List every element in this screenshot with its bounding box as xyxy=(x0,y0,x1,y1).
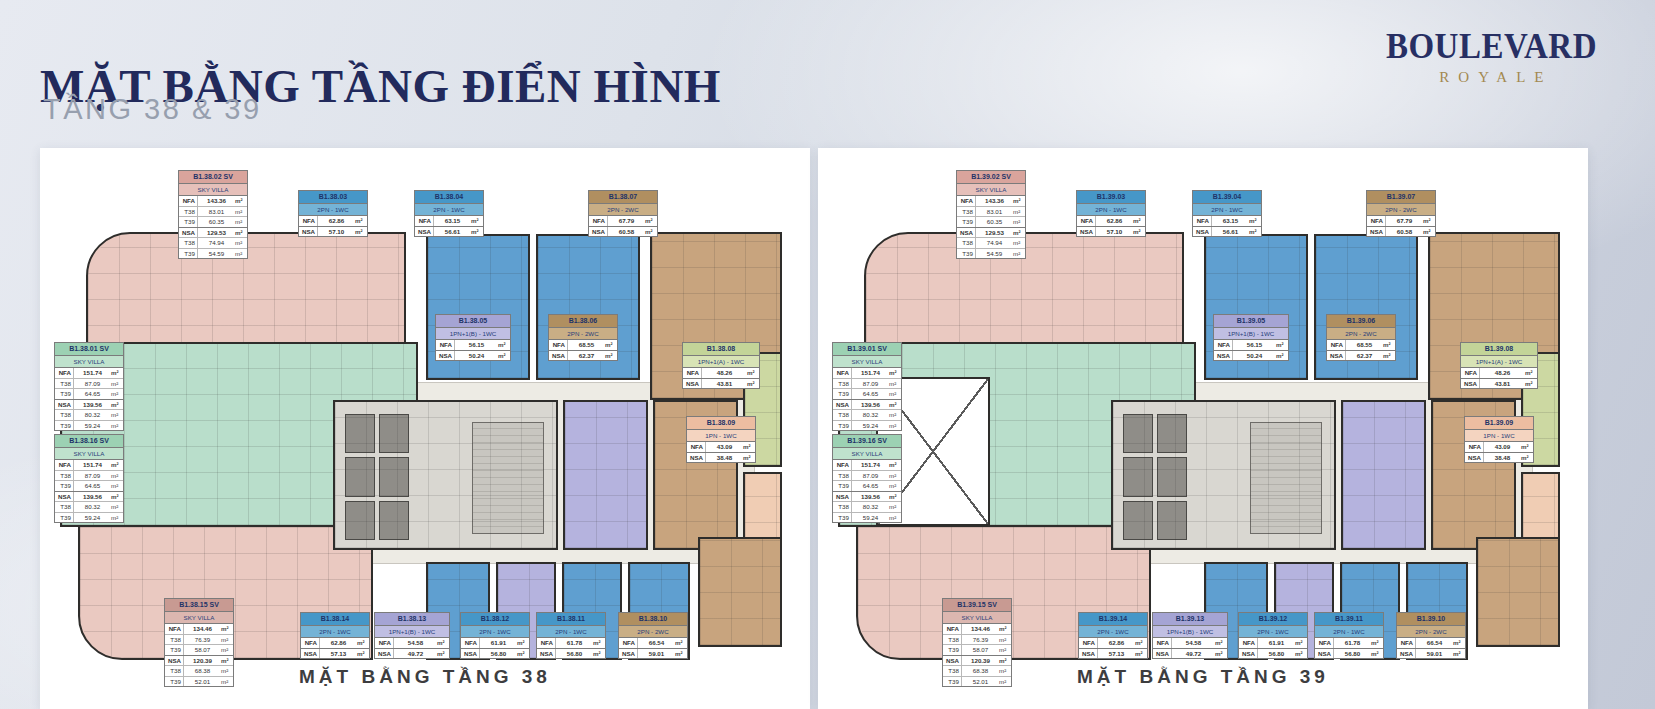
area-row: T3952.01m² xyxy=(943,677,1011,687)
area-row: NFA67.79m² xyxy=(1367,215,1435,227)
unit-table-04: B1.39.042PN - 1WCNFA63.15m²NSA56.61m² xyxy=(1192,190,1262,237)
unit-table-15: B1.38.15 SVSKY VILLANFA134.46m²T3876.39m… xyxy=(164,598,234,687)
area-row: T3880.32m² xyxy=(55,502,123,513)
unit-table-02: B1.38.02 SVSKY VILLANFA143.36m²T3883.01m… xyxy=(178,170,248,259)
elevator-icon xyxy=(345,501,375,540)
unit-table-08: B1.39.081PN+1(A) - 1WCNFA48.26m²NSA43.81… xyxy=(1460,342,1538,389)
unit-code: B1.39.01 SV xyxy=(833,343,901,356)
unit-code: B1.38.14 xyxy=(301,613,369,626)
area-row: T3868.38m² xyxy=(943,666,1011,677)
unit-code: B1.39.12 xyxy=(1239,613,1307,626)
area-row: NSA62.37m² xyxy=(549,350,617,361)
unit-code: B1.38.13 xyxy=(375,613,449,626)
area-row: T3964.65m² xyxy=(833,389,901,400)
unit-table-12: B1.39.122PN - 1WCNFA61.91m²NSA56.80m² xyxy=(1238,612,1308,659)
unit-code: B1.39.05 xyxy=(1214,315,1288,328)
unit-code: B1.38.06 xyxy=(549,315,617,328)
unit-table-14: B1.38.142PN - 1WCNFA62.86m²NSA57.13m² xyxy=(300,612,370,659)
unit-code: B1.38.15 SV xyxy=(165,599,233,612)
unit-table-14: B1.39.142PN - 1WCNFA62.86m²NSA57.13m² xyxy=(1078,612,1148,659)
elevator-icon xyxy=(379,501,409,540)
area-row: NFA66.54m² xyxy=(619,637,687,649)
area-row: T3880.32m² xyxy=(55,410,123,421)
unit-code: B1.39.09 xyxy=(1465,417,1533,430)
unit-code: B1.39.06 xyxy=(1327,315,1395,328)
unit-code: B1.38.03 xyxy=(299,191,367,204)
area-row: NSA49.72m² xyxy=(1153,648,1227,659)
area-row: T3960.35m² xyxy=(179,217,247,228)
area-row: T3964.65m² xyxy=(55,481,123,492)
area-row: NFA134.46m² xyxy=(165,623,233,635)
area-row: NFA61.78m² xyxy=(537,637,605,649)
unit-code: B1.38.16 SV xyxy=(55,435,123,448)
area-row: NFA62.86m² xyxy=(1077,215,1145,227)
unit-table-05: B1.38.051PN+1(B) - 1WCNFA56.15m²NSA50.24… xyxy=(435,314,511,361)
area-row: NSA60.58m² xyxy=(589,226,657,237)
elevator-icon xyxy=(379,414,409,453)
area-row: NFA48.26m² xyxy=(1461,367,1537,379)
unit-table-03: B1.39.032PN - 1WCNFA62.86m²NSA57.10m² xyxy=(1076,190,1146,237)
area-row: NFA63.15m² xyxy=(1193,215,1261,227)
area-row: T3959.24m² xyxy=(55,421,123,431)
block-core xyxy=(333,400,558,550)
floor-plan-panel-39: B1.39.02 SVSKY VILLANFA143.36m²T3883.01m… xyxy=(818,148,1588,709)
elevator-icon xyxy=(379,457,409,496)
area-row: T3874.94m² xyxy=(179,238,247,249)
block-core xyxy=(1111,400,1336,550)
unit-code: B1.39.16 SV xyxy=(833,435,901,448)
unit-table-09: B1.38.091PN - 1WCNFA43.09m²NSA38.48m² xyxy=(686,416,756,463)
elevator-bank xyxy=(345,414,409,540)
block-unit-10 xyxy=(698,537,782,647)
area-row: NFA68.55m² xyxy=(549,339,617,351)
area-row: NSA139.56m² xyxy=(833,399,901,411)
area-row: NSA139.56m² xyxy=(833,491,901,503)
unit-table-16: B1.39.16 SVSKY VILLANFA151.74m²T3887.09m… xyxy=(832,434,902,523)
page-subtitle: TẦNG 38 & 39 xyxy=(43,93,262,126)
elevator-bank xyxy=(1123,414,1187,540)
unit-table-01: B1.39.01 SVSKY VILLANFA151.74m²T3887.09m… xyxy=(832,342,902,431)
area-row: NFA62.86m² xyxy=(301,637,369,649)
area-row: NSA120.39m² xyxy=(943,655,1011,667)
area-row: NSA139.56m² xyxy=(55,399,123,411)
area-row: NFA54.58m² xyxy=(375,637,449,649)
plan-caption-38: MẶT BẰNG TẦNG 38 xyxy=(40,666,810,688)
area-row: T3874.94m² xyxy=(957,238,1025,249)
unit-code: B1.38.11 xyxy=(537,613,605,626)
area-row: T3964.65m² xyxy=(833,481,901,492)
area-row: T3883.01m² xyxy=(179,207,247,218)
elevator-icon xyxy=(1123,414,1153,453)
elevator-icon xyxy=(1123,457,1153,496)
unit-code: B1.39.04 xyxy=(1193,191,1261,204)
unit-code: B1.38.10 xyxy=(619,613,687,626)
block-unit-05 xyxy=(563,400,648,550)
area-row: NSA57.10m² xyxy=(299,226,367,237)
area-row: T3887.09m² xyxy=(833,471,901,482)
area-row: T3868.38m² xyxy=(165,666,233,677)
area-row: NSA57.10m² xyxy=(1077,226,1145,237)
area-row: NSA49.72m² xyxy=(375,648,449,659)
area-row: NFA61.91m² xyxy=(461,637,529,649)
stairs-icon xyxy=(1250,422,1322,534)
area-row: T3954.59m² xyxy=(179,249,247,259)
area-row: NSA59.01m² xyxy=(1397,648,1465,659)
unit-table-12: B1.38.122PN - 1WCNFA61.91m²NSA56.80m² xyxy=(460,612,530,659)
unit-code: B1.39.14 xyxy=(1079,613,1147,626)
block-unit-05 xyxy=(1341,400,1426,550)
unit-code: B1.38.04 xyxy=(415,191,483,204)
floor-plan-drawing-38 xyxy=(58,232,782,660)
unit-code: B1.39.10 xyxy=(1397,613,1465,626)
area-row: NSA129.53m² xyxy=(179,227,247,239)
area-row: NFA63.15m² xyxy=(415,215,483,227)
area-row: NFA66.54m² xyxy=(1397,637,1465,649)
area-row: NSA60.58m² xyxy=(1367,226,1435,237)
area-row: NSA56.80m² xyxy=(537,648,605,659)
unit-table-09: B1.39.091PN - 1WCNFA43.09m²NSA38.48m² xyxy=(1464,416,1534,463)
unit-code: B1.38.01 SV xyxy=(55,343,123,356)
area-row: NSA50.24m² xyxy=(1214,350,1288,361)
unit-table-16: B1.38.16 SVSKY VILLANFA151.74m²T3887.09m… xyxy=(54,434,124,523)
area-row: T3959.24m² xyxy=(833,421,901,431)
area-row: NFA43.09m² xyxy=(687,441,755,453)
area-row: NSA38.48m² xyxy=(687,452,755,463)
area-row: T3952.01m² xyxy=(165,677,233,687)
floor-plan-panel-38: B1.38.02 SVSKY VILLANFA143.36m²T3883.01m… xyxy=(40,148,810,709)
unit-table-01: B1.38.01 SVSKY VILLANFA151.74m²T3887.09m… xyxy=(54,342,124,431)
area-row: NFA151.74m² xyxy=(833,367,901,379)
unit-code: B1.38.02 SV xyxy=(179,171,247,184)
area-row: NSA43.81m² xyxy=(1461,378,1537,389)
area-row: NFA151.74m² xyxy=(55,367,123,379)
unit-code: B1.39.08 xyxy=(1461,343,1537,356)
area-row: NFA62.86m² xyxy=(299,215,367,227)
area-row: NSA50.24m² xyxy=(436,350,510,361)
area-row: T3887.09m² xyxy=(55,471,123,482)
area-row: T3887.09m² xyxy=(55,379,123,390)
elevator-icon xyxy=(1157,457,1187,496)
area-row: NFA67.79m² xyxy=(589,215,657,227)
brand-logo: BOULEVARD ROYALE xyxy=(1386,30,1597,86)
area-row: NSA59.01m² xyxy=(619,648,687,659)
area-row: NSA56.80m² xyxy=(1315,648,1383,659)
brand-logo-name: BOULEVARD xyxy=(1386,29,1597,65)
area-row: NSA56.80m² xyxy=(461,648,529,659)
area-row: T3960.35m² xyxy=(957,217,1025,228)
area-row: NSA120.39m² xyxy=(165,655,233,667)
unit-table-10: B1.38.102PN - 2WCNFA66.54m²NSA59.01m² xyxy=(618,612,688,659)
area-row: NSA139.56m² xyxy=(55,491,123,503)
area-row: NFA134.46m² xyxy=(943,623,1011,635)
unit-code: B1.39.11 xyxy=(1315,613,1383,626)
plan-caption-39: MẶT BẰNG TẦNG 39 xyxy=(818,666,1588,688)
unit-code: B1.39.13 xyxy=(1153,613,1227,626)
unit-table-02: B1.39.02 SVSKY VILLANFA143.36m²T3883.01m… xyxy=(956,170,1026,259)
area-row: NSA56.80m² xyxy=(1239,648,1307,659)
area-row: T3959.24m² xyxy=(833,513,901,523)
unit-table-08: B1.38.081PN+1(A) - 1WCNFA48.26m²NSA43.81… xyxy=(682,342,760,389)
unit-code: B1.39.15 SV xyxy=(943,599,1011,612)
area-row: NSA57.13m² xyxy=(1079,648,1147,659)
brand-logo-sub: ROYALE xyxy=(1386,69,1597,86)
area-row: T3876.39m² xyxy=(943,635,1011,646)
unit-code: B1.39.02 SV xyxy=(957,171,1025,184)
area-row: NSA56.61m² xyxy=(415,226,483,237)
area-row: T3954.59m² xyxy=(957,249,1025,259)
area-row: NSA43.81m² xyxy=(683,378,759,389)
area-row: T3876.39m² xyxy=(165,635,233,646)
elevator-icon xyxy=(1123,501,1153,540)
area-row: NFA43.09m² xyxy=(1465,441,1533,453)
unit-code: B1.38.12 xyxy=(461,613,529,626)
unit-code: B1.39.03 xyxy=(1077,191,1145,204)
area-row: T3958.07m² xyxy=(165,645,233,656)
area-row: NSA129.53m² xyxy=(957,227,1025,239)
stairs-icon xyxy=(472,422,544,534)
elevator-icon xyxy=(1157,501,1187,540)
unit-table-07: B1.39.072PN - 2WCNFA67.79m²NSA60.58m² xyxy=(1366,190,1436,237)
area-row: T3887.09m² xyxy=(833,379,901,390)
unit-table-05: B1.39.051PN+1(B) - 1WCNFA56.15m²NSA50.24… xyxy=(1213,314,1289,361)
unit-table-06: B1.38.062PN - 2WCNFA68.55m²NSA62.37m² xyxy=(548,314,618,361)
unit-code: B1.38.07 xyxy=(589,191,657,204)
unit-table-11: B1.38.112PN - 1WCNFA61.78m²NSA56.80m² xyxy=(536,612,606,659)
unit-code: B1.39.07 xyxy=(1367,191,1435,204)
area-row: NFA143.36m² xyxy=(179,195,247,207)
unit-table-11: B1.39.112PN - 1WCNFA61.78m²NSA56.80m² xyxy=(1314,612,1384,659)
area-row: NSA38.48m² xyxy=(1465,452,1533,463)
area-row: T3880.32m² xyxy=(833,410,901,421)
area-row: NFA56.15m² xyxy=(1214,339,1288,351)
unit-table-15: B1.39.15 SVSKY VILLANFA134.46m²T3876.39m… xyxy=(942,598,1012,687)
area-row: NFA56.15m² xyxy=(436,339,510,351)
area-row: NFA68.55m² xyxy=(1327,339,1395,351)
area-row: NFA62.86m² xyxy=(1079,637,1147,649)
unit-table-10: B1.39.102PN - 2WCNFA66.54m²NSA59.01m² xyxy=(1396,612,1466,659)
area-row: T3959.24m² xyxy=(55,513,123,523)
area-row: T3883.01m² xyxy=(957,207,1025,218)
unit-table-13: B1.38.131PN+1(B) - 1WCNFA54.58m²NSA49.72… xyxy=(374,612,450,659)
unit-code: B1.38.08 xyxy=(683,343,759,356)
unit-table-06: B1.39.062PN - 2WCNFA68.55m²NSA62.37m² xyxy=(1326,314,1396,361)
unit-code: B1.38.09 xyxy=(687,417,755,430)
area-row: T3880.32m² xyxy=(833,502,901,513)
area-row: NFA151.74m² xyxy=(55,459,123,471)
area-row: NFA61.91m² xyxy=(1239,637,1307,649)
elevator-icon xyxy=(345,414,375,453)
area-row: T3958.07m² xyxy=(943,645,1011,656)
area-row: NFA151.74m² xyxy=(833,459,901,471)
area-row: NFA48.26m² xyxy=(683,367,759,379)
unit-table-13: B1.39.131PN+1(B) - 1WCNFA54.58m²NSA49.72… xyxy=(1152,612,1228,659)
area-row: NSA62.37m² xyxy=(1327,350,1395,361)
area-row: NFA54.58m² xyxy=(1153,637,1227,649)
elevator-icon xyxy=(345,457,375,496)
area-row: NSA57.13m² xyxy=(301,648,369,659)
area-row: NFA143.36m² xyxy=(957,195,1025,207)
area-row: T3964.65m² xyxy=(55,389,123,400)
unit-table-03: B1.38.032PN - 1WCNFA62.86m²NSA57.10m² xyxy=(298,190,368,237)
block-unit-10 xyxy=(1476,537,1560,647)
area-row: NFA61.78m² xyxy=(1315,637,1383,649)
unit-table-04: B1.38.042PN - 1WCNFA63.15m²NSA56.61m² xyxy=(414,190,484,237)
floor-plan-drawing-39 xyxy=(836,232,1560,660)
area-row: NSA56.61m² xyxy=(1193,226,1261,237)
unit-code: B1.38.05 xyxy=(436,315,510,328)
elevator-icon xyxy=(1157,414,1187,453)
unit-table-07: B1.38.072PN - 2WCNFA67.79m²NSA60.58m² xyxy=(588,190,658,237)
